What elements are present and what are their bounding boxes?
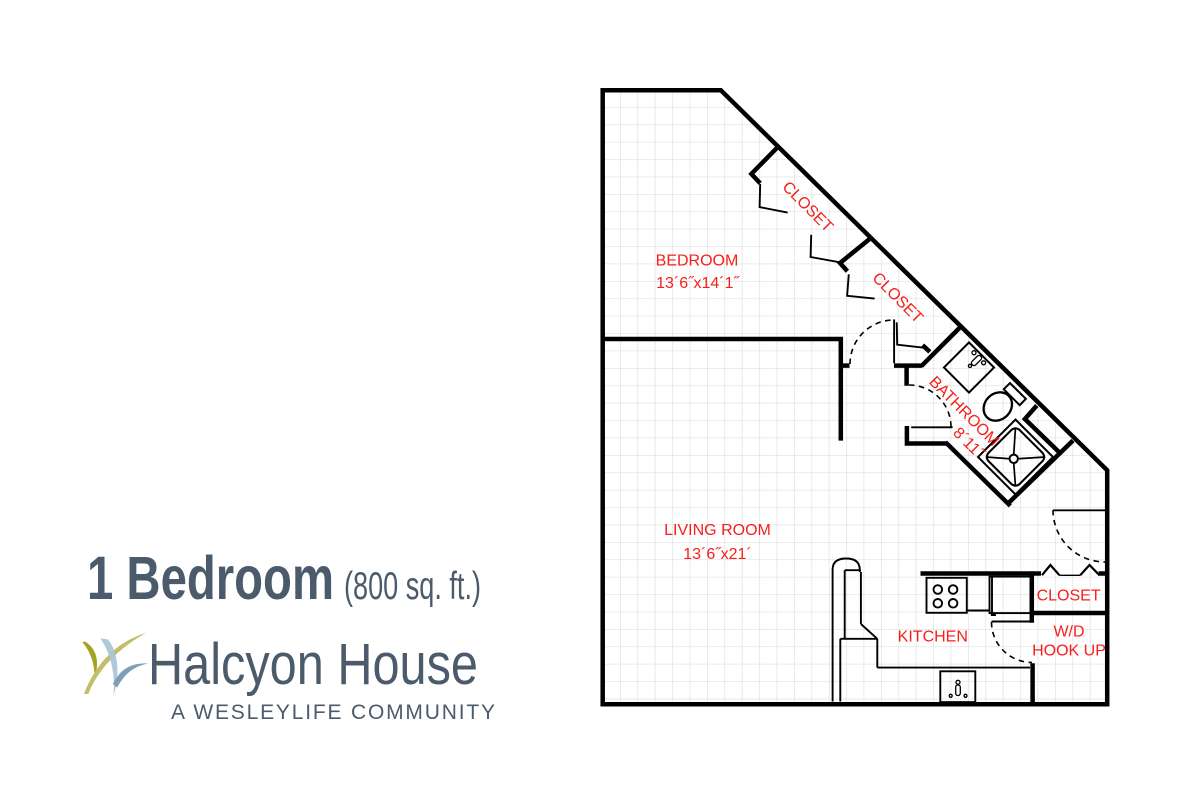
svg-text:CLOSET: CLOSET	[1037, 588, 1101, 605]
svg-text:13´6˝x21´: 13´6˝x21´	[683, 546, 751, 563]
svg-text:W/D: W/D	[1053, 624, 1084, 641]
svg-text:BEDROOM: BEDROOM	[656, 253, 739, 270]
svg-text:KITCHEN: KITCHEN	[898, 629, 968, 646]
svg-text:13´6˝x14´1˝: 13´6˝x14´1˝	[656, 275, 740, 292]
svg-text:LIVING ROOM: LIVING ROOM	[664, 522, 771, 539]
svg-text:HOOK UP: HOOK UP	[1032, 643, 1106, 660]
